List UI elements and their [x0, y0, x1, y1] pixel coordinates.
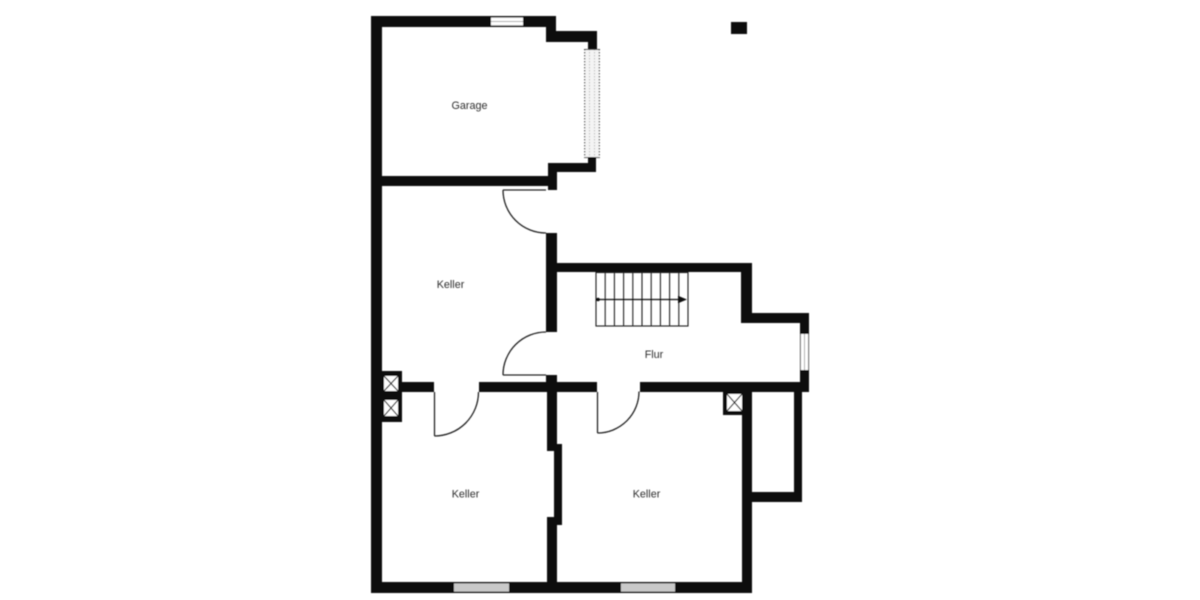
svg-text:Keller: Keller [633, 489, 661, 501]
svg-text:Garage: Garage [451, 100, 487, 112]
svg-text:Flur: Flur [645, 349, 664, 361]
svg-text:Keller: Keller [452, 489, 480, 501]
svg-text:Keller: Keller [437, 279, 465, 291]
